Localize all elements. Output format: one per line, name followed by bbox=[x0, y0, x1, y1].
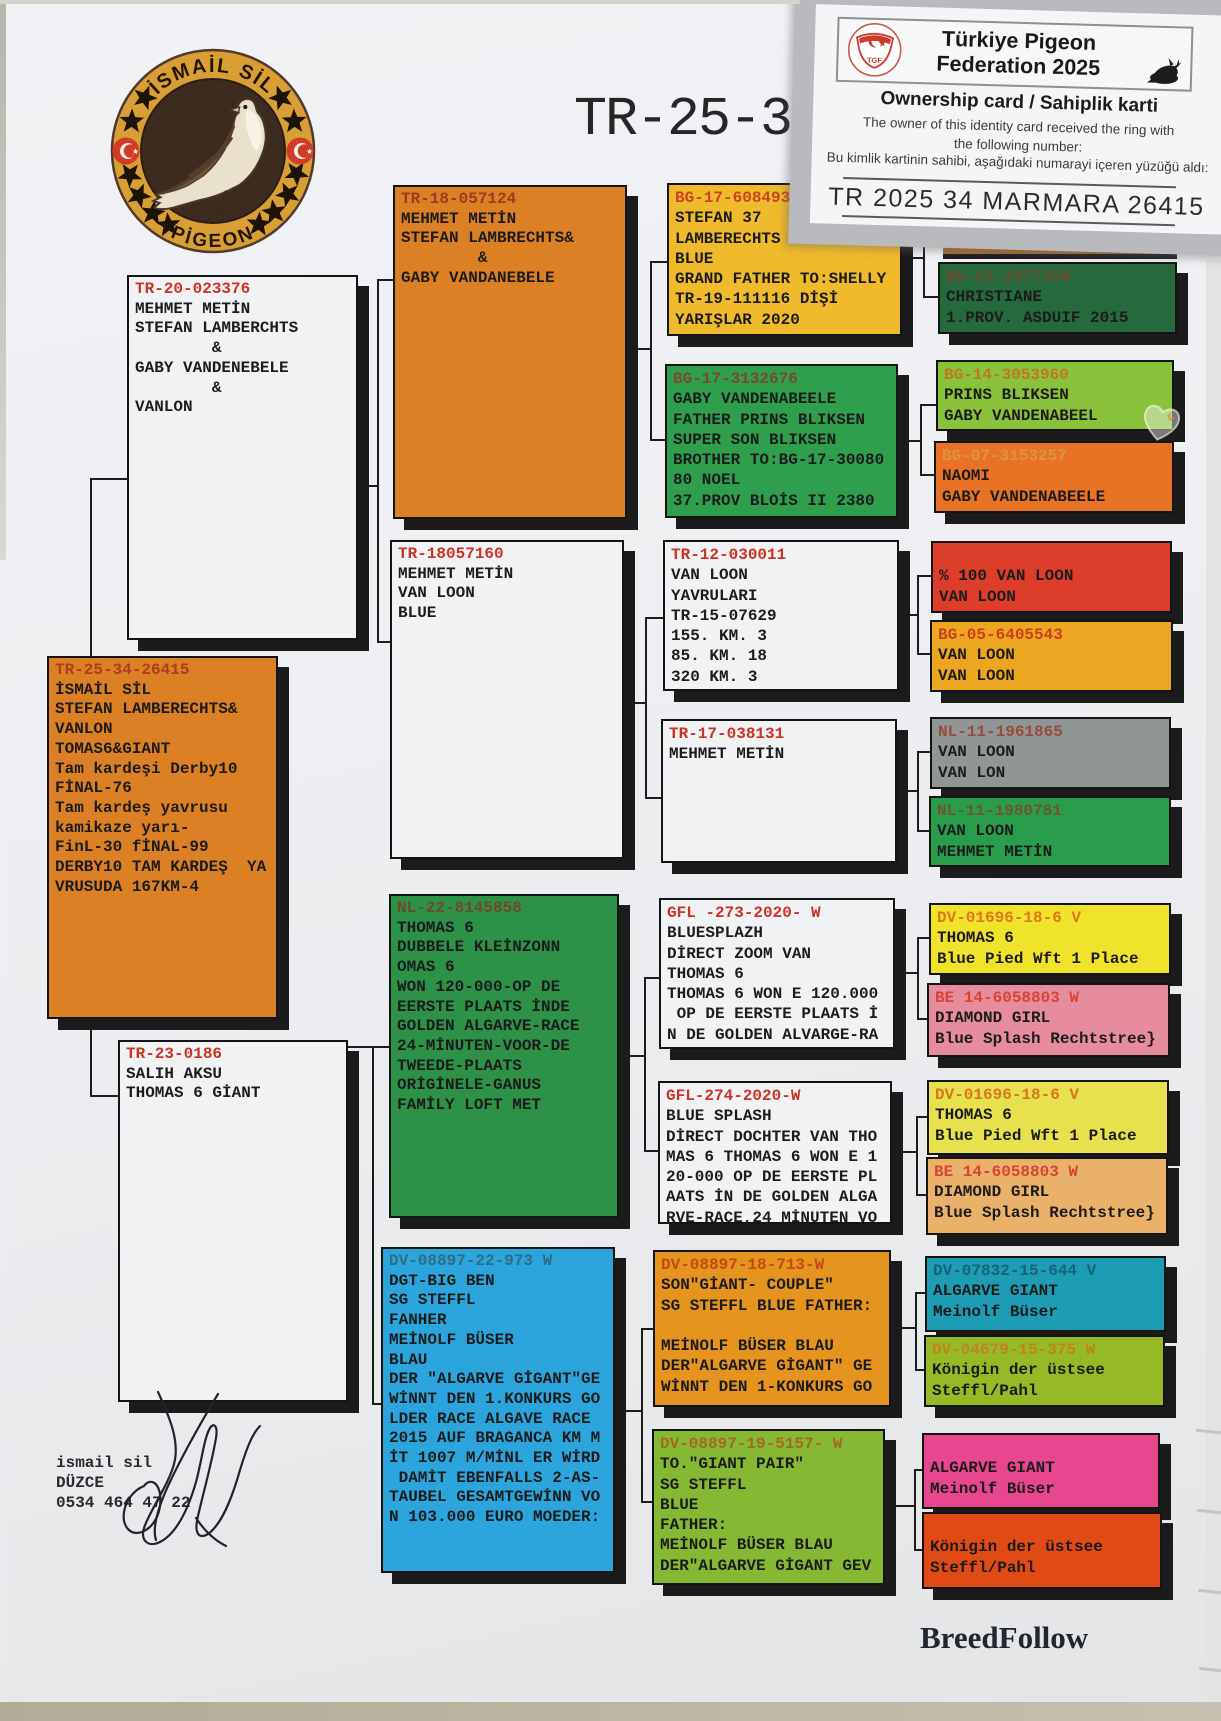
svg-text:TGF: TGF bbox=[867, 56, 883, 65]
